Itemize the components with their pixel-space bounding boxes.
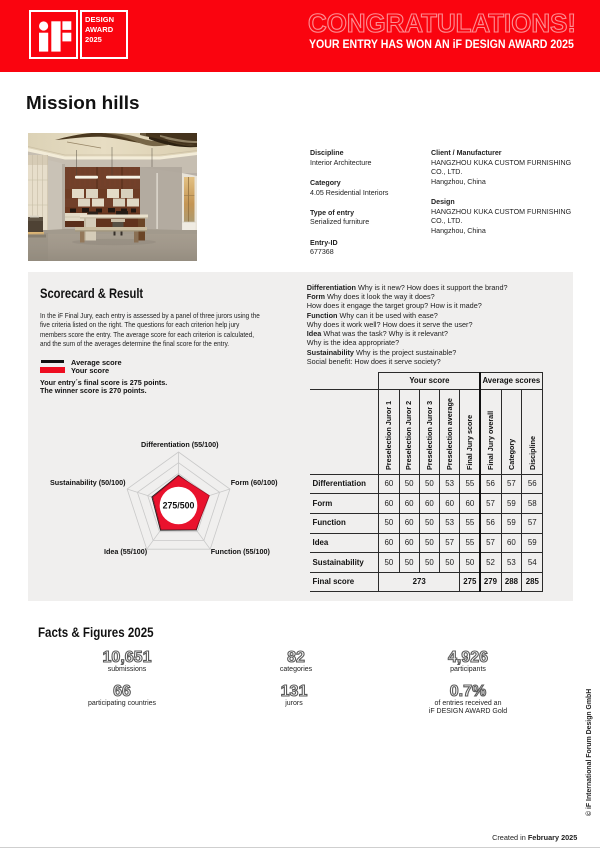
svg-text:275/500: 275/500 [163, 500, 195, 510]
